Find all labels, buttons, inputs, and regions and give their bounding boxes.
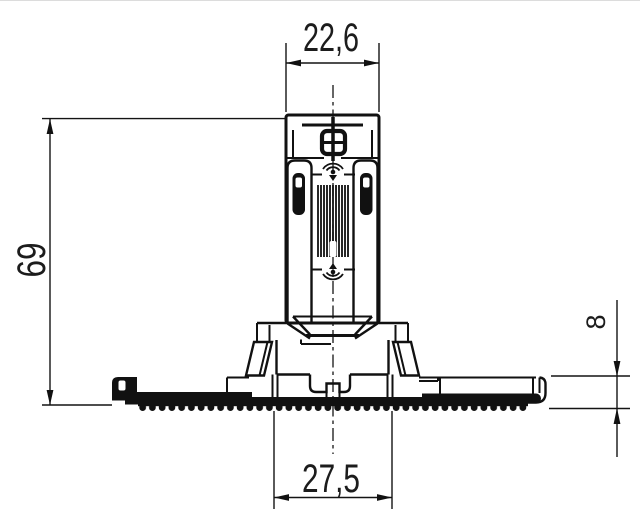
dimension-base-width: 27,5	[274, 411, 392, 509]
dim-base-height-label: 8	[581, 314, 611, 329]
dim-base-width-label: 27,5	[302, 457, 360, 501]
dim-top-width-label: 22,6	[303, 16, 359, 60]
technical-drawing: 22,6 69 8 27,5	[0, 1, 640, 526]
extension-lines	[549, 376, 630, 409]
u-notch	[310, 375, 350, 393]
drawing-canvas: 22,6 69 8 27,5	[0, 0, 640, 526]
pad-left	[227, 378, 249, 393]
base-plate	[112, 377, 546, 413]
dim-overall-height-label: 69	[10, 243, 54, 278]
wing-left	[246, 342, 272, 376]
dimension-overall-height: 69	[10, 119, 285, 405]
dimension-base-height: 8	[549, 300, 630, 457]
pad-right	[419, 377, 536, 394]
wing-right	[393, 342, 419, 376]
serrated-edge	[138, 403, 528, 412]
ribbed-section	[318, 185, 348, 257]
part-front-view	[112, 115, 546, 412]
